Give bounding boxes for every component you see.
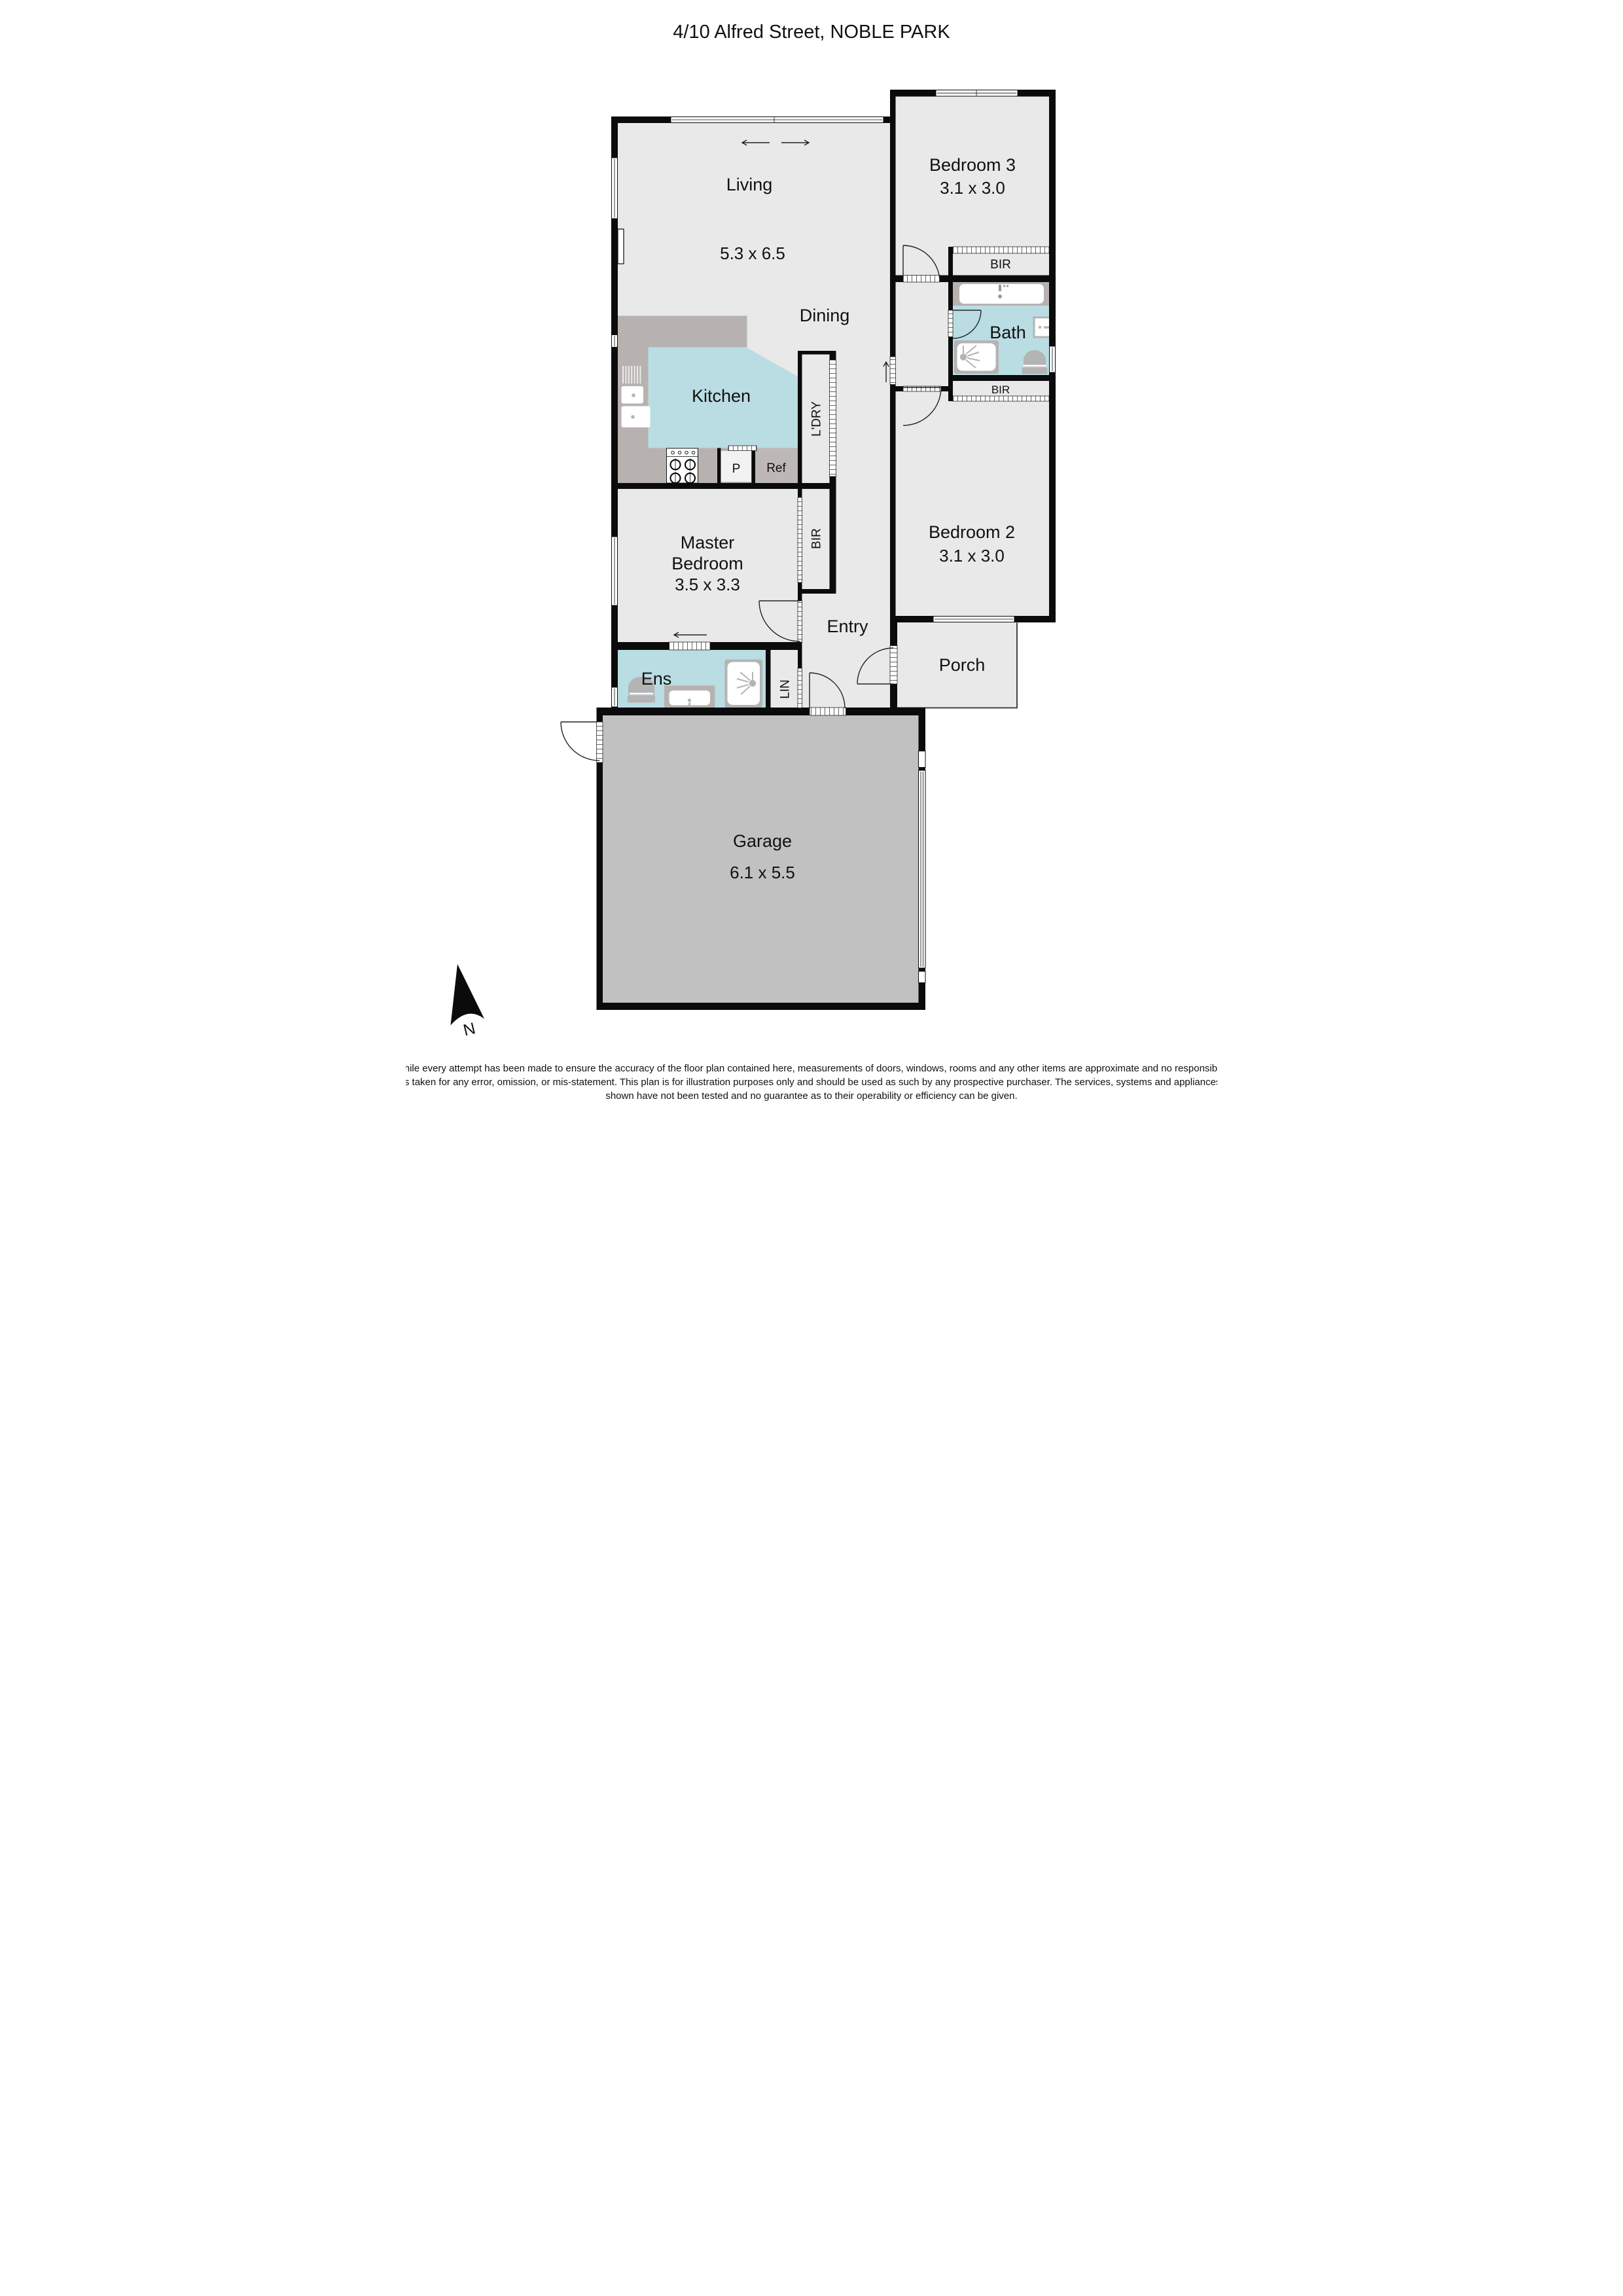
living-label: Living	[726, 175, 773, 194]
porch-label: Porch	[939, 655, 986, 675]
bir-master-label: BIR	[810, 528, 824, 549]
fridge-label: Ref	[766, 461, 786, 475]
master-side-window	[612, 537, 618, 605]
bath-window	[1050, 346, 1056, 372]
dining-hall-slider	[890, 357, 896, 385]
pantry-door	[728, 446, 757, 451]
bedroom2-dims: 3.1 x 3.0	[939, 546, 1005, 565]
ensuite-area	[618, 650, 766, 708]
north-label: N	[461, 1019, 477, 1040]
bir-bedroom3-doors	[953, 247, 1049, 253]
garage-roller-door	[919, 770, 926, 968]
bedroom2-doorway	[903, 386, 941, 391]
bir-bedroom2-label: BIR	[991, 384, 1010, 396]
floor-plan-canvas: 4/10 Alfred Street, NOBLE PARK	[406, 0, 1217, 1148]
bedroom3-window	[936, 90, 1018, 97]
wall-segment	[890, 90, 896, 616]
bath-vanity-basin	[959, 284, 1044, 304]
garage-window-top	[919, 751, 926, 768]
ens-side-window	[612, 687, 618, 707]
wall-nook	[618, 229, 624, 264]
master-label-2: Bedroom	[671, 554, 743, 573]
wall-segment	[802, 483, 830, 489]
dining-label: Dining	[800, 306, 850, 325]
pantry-label: P	[732, 462, 741, 476]
bedroom2-label: Bedroom 2	[929, 522, 1015, 542]
garage-side-doorway	[597, 722, 603, 762]
north-arrow-icon	[451, 964, 485, 1026]
living-dims: 5.3 x 6.5	[720, 243, 785, 263]
laundry-doors	[830, 360, 836, 476]
ens-vanity	[664, 686, 715, 708]
garage-internal-doorway	[810, 708, 846, 715]
ens-label: Ens	[641, 669, 672, 689]
linen-label: LIN	[779, 679, 793, 699]
garage-dims: 6.1 x 5.5	[730, 863, 795, 882]
north-arrow: N	[451, 964, 485, 1040]
kitchen-label: Kitchen	[692, 386, 751, 406]
disclaimer-line-3: shown have not been tested and no guaran…	[605, 1090, 1017, 1102]
master-label-1: Master	[681, 533, 735, 552]
wall-segment	[752, 448, 756, 484]
wall-segment	[798, 589, 836, 594]
garage-label: Garage	[733, 831, 792, 851]
wall-segment	[948, 375, 1056, 381]
master-ens-slider	[669, 642, 711, 650]
sink-drainer-icon	[623, 366, 640, 384]
wall-segment	[948, 276, 1056, 283]
front-doorway	[890, 646, 897, 685]
page-title: 4/10 Alfred Street, NOBLE PARK	[673, 22, 950, 43]
door-swing	[561, 722, 599, 761]
floor-plan-page: 4/10 Alfred Street, NOBLE PARK	[406, 0, 1217, 1148]
bath-doorway	[948, 310, 953, 337]
bedroom3-label: Bedroom 3	[929, 155, 1016, 175]
entry-label: Entry	[827, 617, 868, 636]
garage-floor	[603, 715, 919, 1003]
wall-segment	[717, 448, 721, 484]
living-top-window	[671, 117, 883, 123]
disclaimer-line-1: "While every attempt has been made to en…	[406, 1063, 1217, 1074]
garage-window-bottom	[919, 971, 926, 983]
disclaimer: "While every attempt has been made to en…	[406, 1063, 1217, 1102]
linen-doors	[798, 668, 802, 708]
shower-icon	[954, 340, 999, 374]
disclaimer-line-2: is taken for any error, omission, or mis…	[406, 1077, 1217, 1088]
kitchen-side-window	[612, 335, 618, 348]
bir-bedroom2-doors	[953, 396, 1049, 401]
wall-segment	[597, 1003, 926, 1010]
bedroom3-doorway	[903, 276, 940, 283]
master-dims: 3.5 x 3.3	[675, 575, 740, 594]
bir-bedroom3-label: BIR	[990, 258, 1011, 272]
bir-master-doors	[798, 497, 802, 583]
kitchen-bench-top	[618, 316, 747, 348]
stove-icon	[667, 448, 698, 484]
kitchen-sink-2	[622, 406, 651, 428]
bedroom3-dims: 3.1 x 3.0	[940, 178, 1005, 198]
bath-label: Bath	[990, 323, 1026, 342]
laundry-label: L'DRY	[810, 401, 824, 437]
wall-segment	[766, 642, 771, 708]
sink-drain-icon	[632, 393, 635, 397]
shower-icon	[725, 660, 763, 708]
living-side-window	[612, 158, 618, 219]
wall-segment	[597, 708, 926, 715]
sink-drain-icon	[631, 415, 635, 419]
bedroom2-window	[933, 617, 1014, 622]
master-doorway	[798, 601, 802, 642]
wall-segment	[611, 483, 798, 489]
